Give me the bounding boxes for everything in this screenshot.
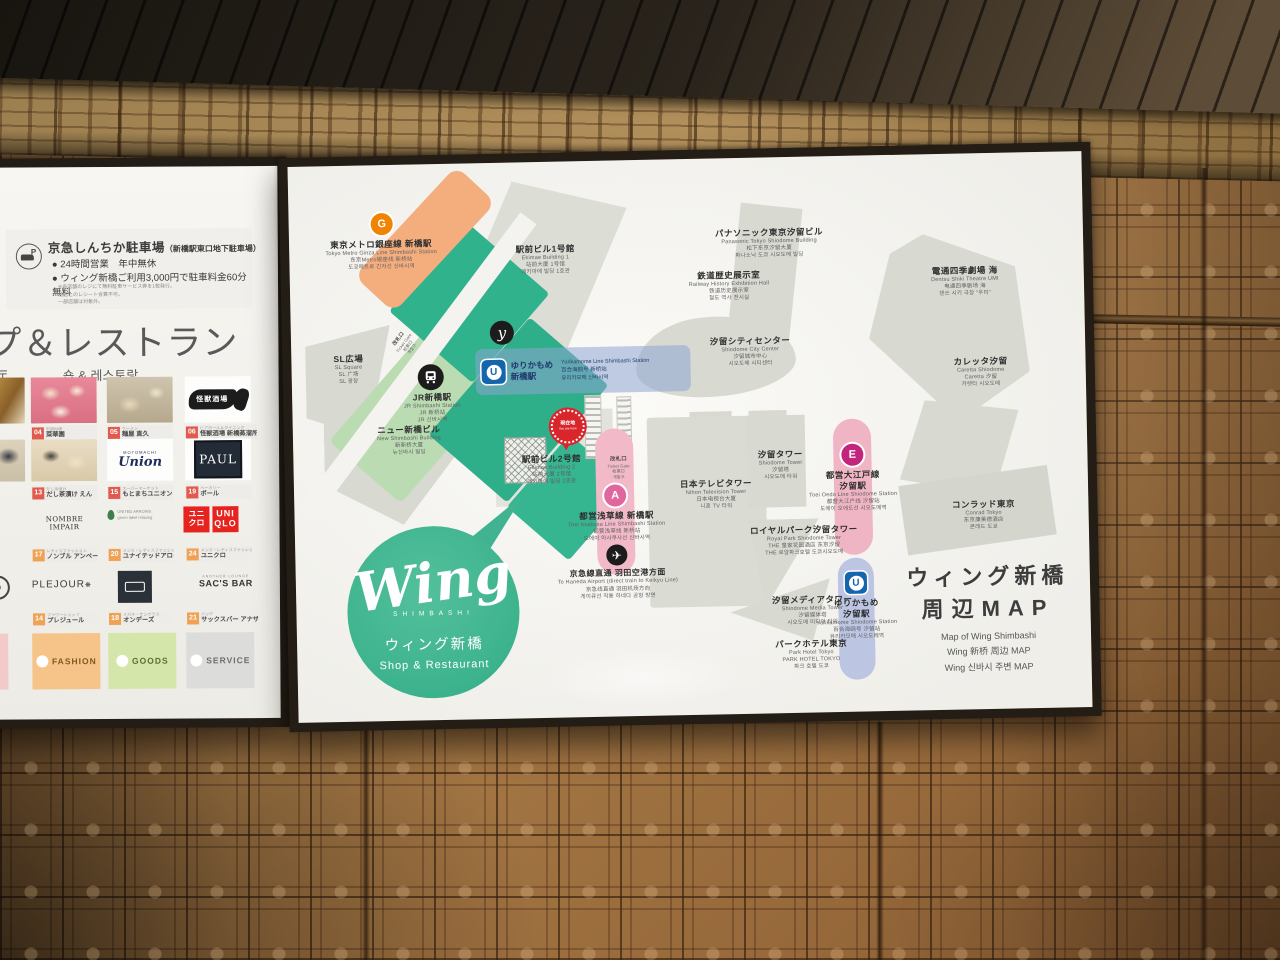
category-fashion: FASHION [32,633,100,689]
shops-heading-ja: プ＆レストラン [0,314,239,367]
shop-photo-04 [31,377,97,423]
caretta-label: カレッタ汐留Caretta ShiodomeCaretta 汐留카렛타 시오도메 [909,355,1052,390]
service-icon [190,654,202,666]
dentsu-area [867,232,1031,423]
kaiju-sakaba-logo: 怪獣酒場 [185,376,251,422]
owndays-logo [118,571,152,603]
haneda-direction-label: 京急線直通 羽田空港方面To Haneda Airport (direct tr… [540,567,697,602]
map-title-block: ウィング新橋 周辺MAP Map of Wing Shimbashi Wing … [900,557,1077,674]
ginza-line-badge: G [370,213,392,235]
partial-logo-row4: D [0,576,10,600]
ticket-gate-label-ekimae: 改札口Ticket Gate检票口개찰구 [595,456,641,480]
yurikamome-badge: U [481,360,505,384]
green-label-logo: UNITED ARROWSgreen label relaxing [107,509,173,521]
wing-shimbashi-logo: Wing SHIMBASHI ウィング新橋 Shop & Restaurant [346,524,521,699]
shop-photo-13 [31,439,97,481]
fashion-icon [36,655,48,667]
shop-photo-partial [0,377,25,423]
ekimae-2-label: 駅前ビル2号館Ekimae Building 2站前大厦 2号馆에키마에 빌딩 … [497,453,606,488]
glasses-icon [125,582,145,592]
parking-note-2: 他店とのレシート合算不可。 [58,291,123,297]
panel-glare [543,648,744,708]
sl-square-label: SL広場SL SquareSL 广场SL 광장 [307,353,390,387]
parking-note-3: 一部店舗は対象外。 [58,299,103,305]
parking-car-icon: P [16,243,42,269]
railway-history-label: 鉄道歴史展示室Railway History Exhibition Hall铁道… [648,269,811,305]
shop-photo-partial [0,439,25,481]
category-tile-partial [0,634,9,690]
shop-item-24: 24メンズ・レディスファッションユニクロ [186,546,252,561]
oedo-station-label: 都営大江戸線汐留駅Toei Oedo Line Shiodome Station… [788,468,919,514]
map-title-ja-2: 周辺MAP [900,589,1076,625]
parking-subtitle: （新橋駅東口地下駐車場） [165,244,261,254]
bird-icon: ❋ [85,582,92,589]
wing-logo-tagline: Shop & Restaurant [348,657,520,672]
tile-seam [362,722,370,960]
shop-item-21: 21バッグサックスバー アナザーラウンジ [186,610,258,625]
royal-park-label: ロイヤルパーク汐留タワーRoyal Park Shiodome TowerTHE… [713,523,896,559]
shop-item-13: 13だし茶漬けだし茶漬け えん [31,485,97,500]
dentsu-label: 電通四季劇場 海Dentsu Shiki Theatre UMI电通四季剧场 海… [884,264,1047,300]
parking-info-box: P 京急しんちか駐車場（新橋駅東口地下駐車場） ● 24時間営業 年中無休 ● … [6,228,252,310]
parking-title: 京急しんちか駐車場 [48,241,165,256]
plejour-logo: PLEJOUR❋ [32,579,102,590]
wing-logo-ja: ウィング新橋 [348,631,520,655]
park-hotel-label: パークホテル東京Park Hotel TokyoPARK HOTEL TOKYO… [735,637,888,673]
yurikamome-shimbashi-banner: U ゆりかもめ新橋駅 Yurikamome Line Shimbashi Sta… [475,345,691,395]
map-title-zh: Wing 新桥 周边 MAP [901,642,1076,659]
ekimae-1-label: 駅前ビル1号館Ekimae Building 1站前大厦 1号馆에키마에 빌딩 … [485,243,606,278]
map-title-en: Map of Wing Shimbashi [901,629,1076,643]
map-content: G 東京メトロ銀座線 新橋駅Tokyo Metro Ginza Line Shi… [294,171,1084,713]
you-are-here-marker: 現在地You are here [550,409,581,451]
ginza-station-label: 東京メトロ銀座線 新橋駅Tokyo Metro Ginza Line Shimb… [303,238,460,274]
panasonic-label: パナソニック東京汐留ビルPanasonic Tokyo Shiodome Bui… [663,225,876,262]
map-title-ja-1: ウィング新橋 [900,557,1076,593]
shop-item-19: 19ベーカリーポール [185,484,251,499]
yurikamome-badge-2: U [845,571,867,593]
shop-item-17: 17レディスファッションノンブル アンペール [32,547,98,562]
paul-logo: PAUL [185,438,251,480]
shop-photo-05 [107,377,173,423]
area-map-panel: G 東京メトロ銀座線 新橋駅Tokyo Metro Ginza Line Shi… [278,142,1101,732]
jr-shimbashi-label: JR新橋駅JR Shimbashi StationJR 新桥站JR 신바시역 [386,391,479,425]
shop-item-18: 18メガネ・サングラスオンデーズ [108,611,174,626]
nombre-impair-logo: NOMBRE IMPAIR [31,515,97,531]
shop-item-14: 14フラワーショッププレジュール [32,611,98,626]
leaf-icon [107,510,114,520]
shop-directory-content: P 京急しんちか駐車場（新橋駅東口地下駐車場） ● 24時間営業 年中無休 ● … [0,166,281,720]
category-service: SERVICE [186,632,254,688]
uniqlo-logo: ユニクロ UNIQLO [183,506,238,532]
conrad-label: コンラッド東京Conrad Tokyo东京康莱德酒店콘래드 도쿄 [912,498,1055,533]
map-title-ko: Wing 신바시 주변 MAP [902,658,1077,675]
parking-note-1: ※各店舗のレジにて無料駐車サービス券を1枚発行。 [58,284,175,291]
nittele-label: 日本テレビタワーNihon Television Tower日本电视台大厦니혼 … [650,477,783,512]
union-logo: MOTOMACHIUnion [107,439,173,481]
new-shimbashi-label: ニュー新橋ビルNew Shimbashi Building新新桥大厦뉴신바시 빌… [347,423,472,458]
city-center-label: 汐留シティセンターShiodome City Center汐留城市中心시오도메 … [669,334,832,370]
shop-item-20: 20メンズ・レディスファッションユナイテッドアローズGLR [108,547,174,562]
tile-seam [1200,168,1208,960]
shop-item-15: 15スーパーマーケットもとまちユニオン [107,485,173,500]
sacsbar-logo: ANOTHER LOUNGE SAC'S BAR [186,574,266,588]
category-goods: GOODS [108,633,176,689]
shop-directory-panel: P 京急しんちか駐車場（新橋駅東口地下駐車場） ● 24時間営業 年中無休 ● … [0,157,290,729]
tile-seam [876,722,884,960]
goods-icon [116,655,128,667]
parking-hours: ● 24時間営業 年中無休 [52,256,157,271]
asakusa-station-label: 都営浅草線 新橋駅Toei Asakusa Line Shimbashi Sta… [550,509,683,544]
